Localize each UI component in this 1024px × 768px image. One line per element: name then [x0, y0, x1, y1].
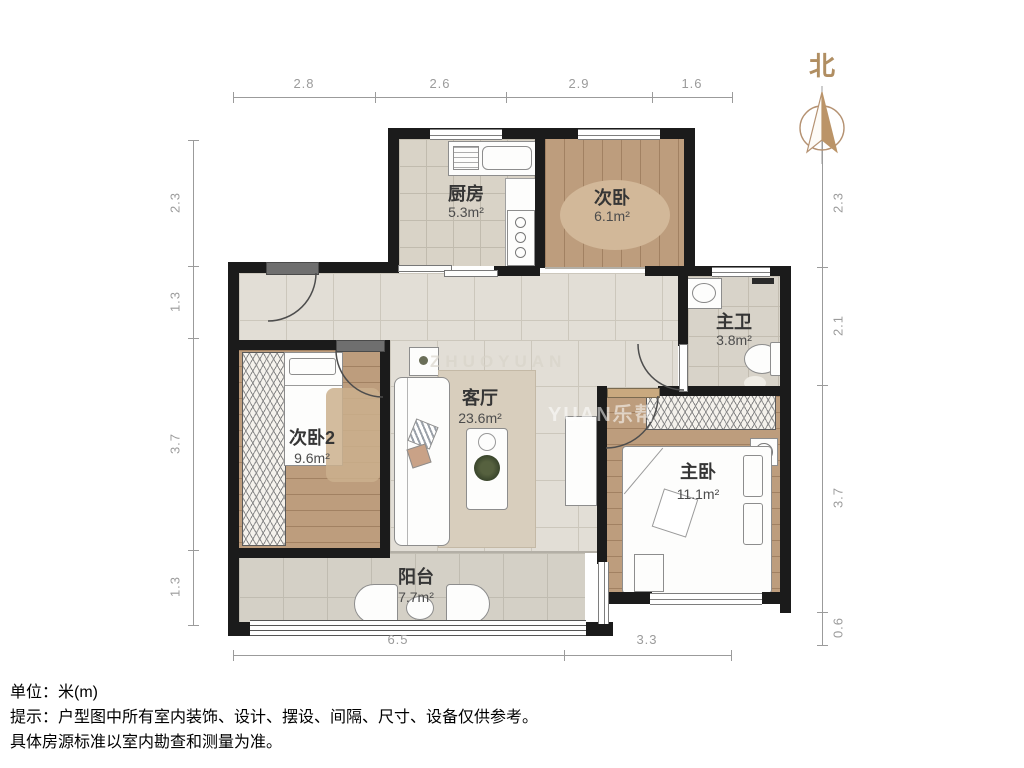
dim-label: 2.3 — [831, 183, 846, 223]
window — [650, 593, 762, 605]
kitchen-sink-basin — [482, 146, 532, 170]
dim-label: 3.3 — [627, 632, 667, 647]
room-area-living: 23.6m² — [435, 410, 525, 426]
bathroom-sink-bowl — [692, 283, 716, 303]
room-area-bedroom-second2: 9.6m² — [267, 450, 357, 466]
note-disclaimer: 提示：户型图中所有室内装饰、设计、摆设、间隔、尺寸、设备仅供参考。 — [10, 705, 538, 730]
entry-door-leaf — [266, 262, 319, 275]
dim-label: 2.6 — [420, 76, 460, 91]
wall — [535, 128, 545, 268]
wall — [597, 386, 607, 564]
room-label-kitchen: 厨房 — [421, 180, 511, 206]
bedroom-second2-door-leaf — [336, 340, 385, 352]
dim-tick — [817, 612, 828, 613]
wall — [684, 128, 695, 275]
plant — [474, 455, 500, 481]
dim-tick — [731, 650, 732, 661]
bathroom-sink — [686, 278, 722, 309]
master-wardrobe — [646, 394, 776, 430]
dim-label: 2.9 — [559, 76, 599, 91]
compass-icon — [792, 86, 852, 164]
wall — [585, 622, 613, 636]
master-bedroom-door-leaf — [607, 388, 660, 398]
dim-tick — [652, 92, 653, 103]
floorplan-page: ZHUOYUAN YUAN乐帮 厨房 5.3m² 次卧 6.1m² 主卫 3.8… — [0, 0, 1024, 768]
room-label-master-bedroom: 主卧 — [653, 458, 743, 484]
dim-label: 3.7 — [831, 478, 846, 518]
room-label-bedroom-second: 次卧 — [567, 184, 657, 210]
bedroom-second-opening-line — [545, 267, 645, 269]
dim-tick — [188, 625, 199, 626]
bed-pillow — [289, 358, 336, 375]
room-area-bedroom-second: 6.1m² — [567, 208, 657, 224]
decor-flower — [419, 356, 428, 365]
dim-label: 3.7 — [168, 424, 183, 464]
wall — [316, 262, 398, 273]
dim-label: 1.3 — [168, 567, 183, 607]
note-unit: 单位：米(m) — [10, 680, 538, 705]
room-label-living: 客厅 — [435, 384, 525, 410]
wall — [658, 386, 791, 396]
bed-blanket-line — [285, 385, 342, 386]
dim-tick — [233, 92, 234, 103]
wall — [388, 128, 399, 273]
stove-burner — [515, 217, 526, 228]
window — [578, 129, 660, 140]
dim-tick — [188, 140, 199, 141]
table-tray — [478, 433, 496, 451]
dim-tick — [564, 650, 565, 661]
window — [430, 129, 502, 140]
note-disclaimer2: 具体房源标准以室内勘查和测量为准。 — [10, 730, 538, 755]
bathroom-door-leaf — [679, 344, 688, 392]
wall — [228, 262, 239, 636]
nightstand — [634, 554, 664, 592]
footnotes: 单位：米(m) 提示：户型图中所有室内装饰、设计、摆设、间隔、尺寸、设备仅供参考… — [10, 680, 538, 755]
kitchen-drainboard — [453, 146, 479, 170]
wall — [380, 340, 390, 558]
coffee-table — [466, 428, 508, 510]
bed-pillow — [743, 503, 763, 545]
dim-tick — [188, 550, 199, 551]
compass-needle-right — [822, 92, 837, 152]
stove-burner — [515, 247, 526, 258]
dim-label: 2.3 — [168, 183, 183, 223]
wall-decor-frame — [409, 347, 439, 376]
sofa-seat-line — [407, 378, 408, 545]
dimension-line-bottom — [233, 655, 731, 656]
dim-tick — [817, 267, 828, 268]
wall — [228, 548, 390, 558]
dim-label: 1.3 — [168, 282, 183, 322]
compass-needle-left — [807, 92, 822, 152]
dim-tick — [188, 338, 199, 339]
wall — [228, 340, 338, 350]
shower-fixture — [752, 278, 774, 284]
dim-tick — [375, 92, 376, 103]
room-label-bedroom-second2: 次卧2 — [267, 424, 357, 450]
room-area-master-bedroom: 11.1m² — [653, 486, 743, 502]
tv-console — [565, 416, 597, 506]
dim-tick — [732, 92, 733, 103]
window — [598, 562, 609, 624]
wall — [228, 622, 252, 636]
room-label-balcony: 阳台 — [371, 563, 461, 589]
dim-label: 0.6 — [831, 608, 846, 648]
north-label: 北 — [800, 46, 844, 83]
dimension-line-left — [193, 140, 194, 625]
window — [712, 267, 770, 277]
dimension-line-right — [822, 140, 823, 645]
sliding-door-panel — [444, 270, 498, 277]
dim-label: 6.5 — [378, 632, 418, 647]
dim-tick — [506, 92, 507, 103]
room-label-master-bath: 主卫 — [689, 308, 779, 334]
dim-label: 2.1 — [831, 306, 846, 346]
dim-label: 2.8 — [284, 76, 324, 91]
dim-tick — [817, 645, 828, 646]
dim-tick — [188, 266, 199, 267]
dim-tick — [817, 385, 828, 386]
room-area-kitchen: 5.3m² — [421, 204, 511, 220]
wall — [494, 266, 540, 276]
dimension-line-top — [233, 97, 732, 98]
balcony-railing — [250, 620, 586, 636]
dim-tick — [233, 650, 234, 661]
wall — [780, 266, 791, 613]
room-area-balcony: 7.7m² — [371, 589, 461, 605]
balcony-opening-line — [390, 551, 597, 553]
bed-pillow — [743, 455, 763, 497]
wall — [678, 266, 688, 346]
room-area-master-bath: 3.8m² — [689, 332, 779, 348]
stove-burner — [515, 232, 526, 243]
wall — [607, 592, 652, 604]
hallway-floor — [239, 273, 678, 343]
wall — [762, 592, 791, 604]
kitchen-stove — [507, 210, 535, 266]
dim-label: 1.6 — [672, 76, 712, 91]
